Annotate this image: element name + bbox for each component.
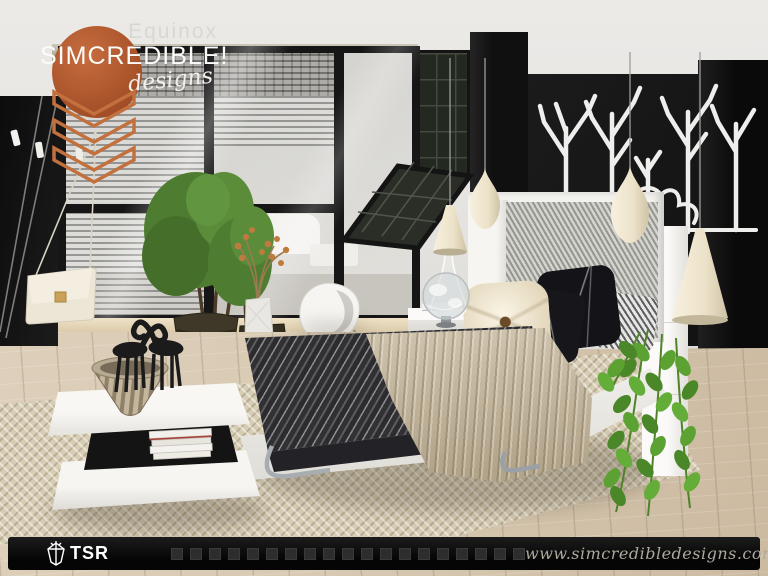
stacked-books — [149, 428, 212, 459]
footer-squares — [171, 548, 525, 560]
tsr-gem-icon — [46, 541, 66, 567]
vine-leaves — [594, 338, 703, 509]
striped-bowl — [92, 357, 168, 416]
set-title: Equinox — [60, 20, 218, 44]
bed-sled-legs — [267, 446, 540, 476]
pendant-lamp-cone-small — [433, 205, 467, 256]
footer-bar: TSR www.simcredibledesigns.com — [8, 537, 760, 570]
promo-image: Equinox SIMCREDIBLE! designs TSR www.sim… — [0, 0, 768, 576]
pendant-lamp-teardrop-small — [470, 168, 500, 229]
glass-globe — [423, 273, 469, 328]
tsr-logo-text: TSR — [70, 543, 109, 564]
chevron-badge — [46, 86, 142, 186]
tsr-logo: TSR — [46, 541, 109, 567]
hanging-vine-plant — [594, 330, 703, 516]
pendant-lamp-teardrop-large — [611, 166, 649, 243]
pendant-lamp-cone-large — [672, 228, 728, 325]
website-url: www.simcredibledesigns.com — [525, 544, 768, 563]
